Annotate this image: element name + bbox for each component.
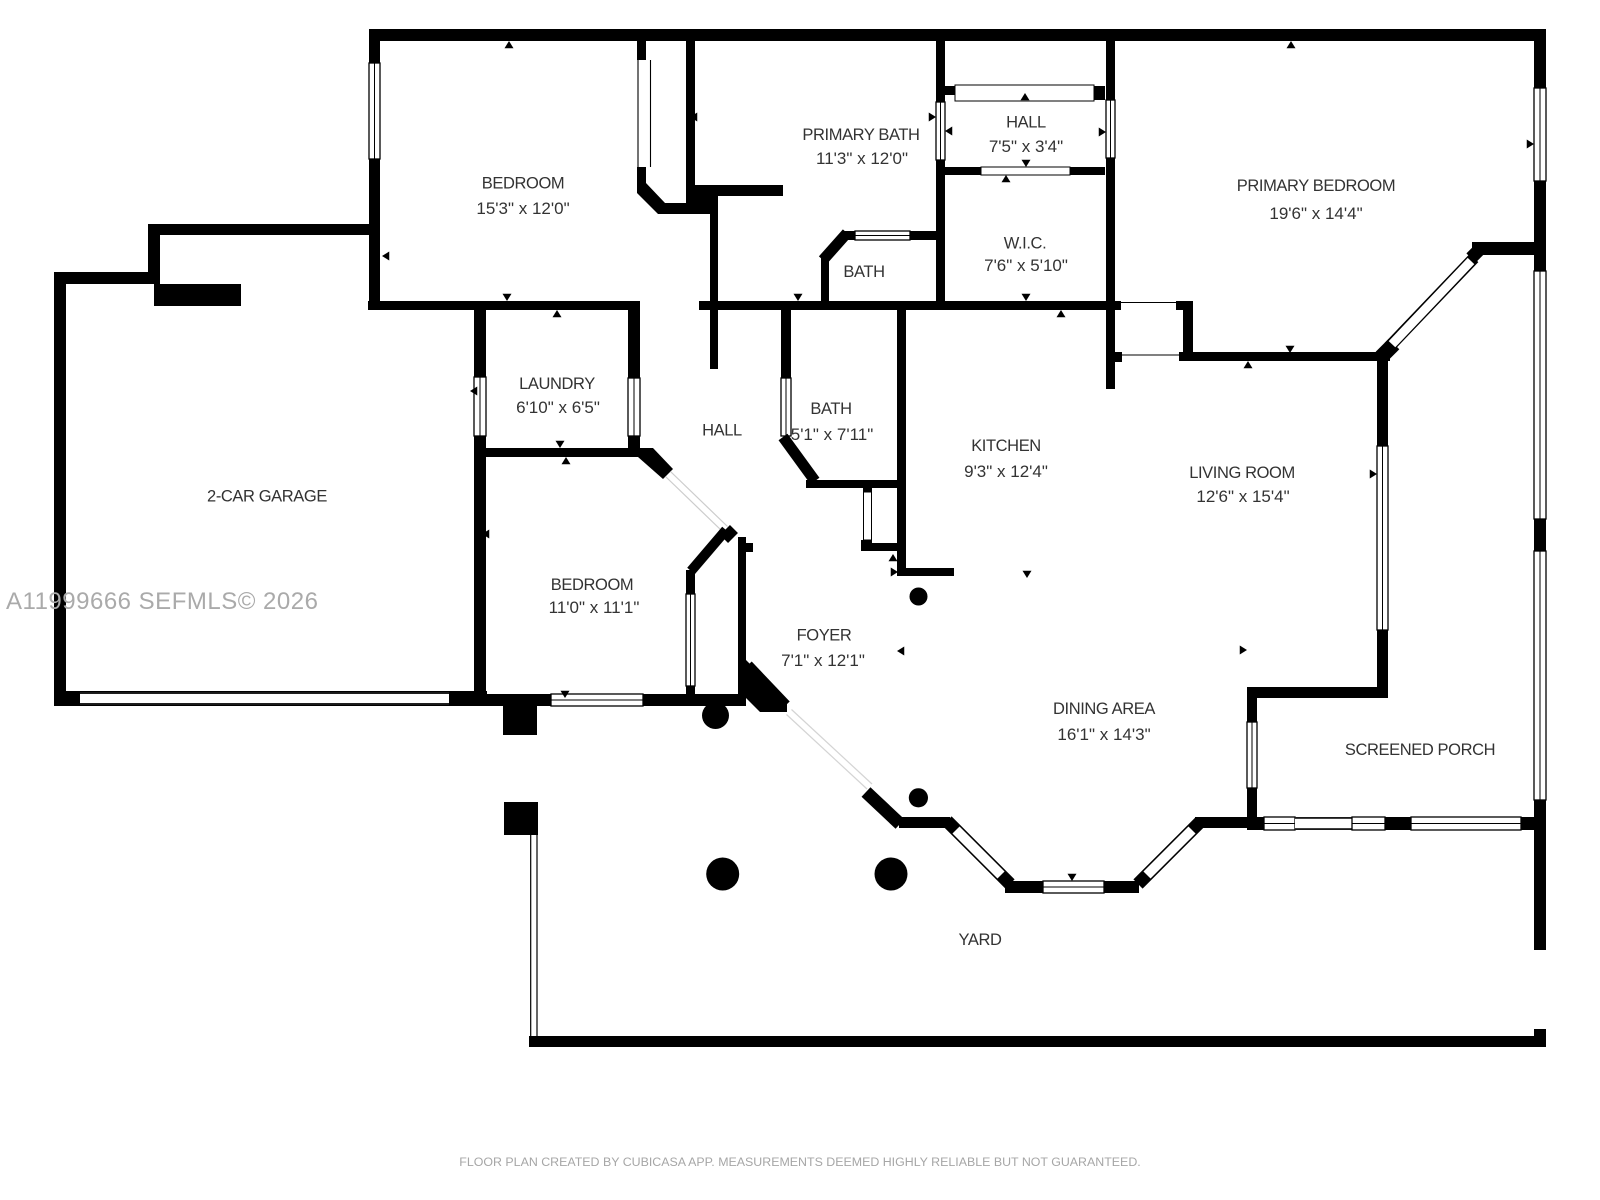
svg-text:BEDROOM: BEDROOM [482,175,564,193]
svg-text:PRIMARY BATH: PRIMARY BATH [802,126,919,144]
svg-text:LIVING ROOM: LIVING ROOM [1189,464,1295,482]
svg-text:BATH: BATH [810,400,851,418]
svg-text:11'3" x 12'0": 11'3" x 12'0" [816,149,908,168]
svg-text:BATH: BATH [843,263,884,281]
svg-text:11'0" x 11'1": 11'0" x 11'1" [549,598,640,617]
svg-text:2-CAR GARAGE: 2-CAR GARAGE [207,488,327,506]
svg-text:BEDROOM: BEDROOM [551,576,633,594]
svg-text:19'6" x 14'4": 19'6" x 14'4" [1269,204,1362,223]
svg-text:9'3" x 12'4": 9'3" x 12'4" [964,462,1048,481]
svg-text:W.I.C.: W.I.C. [1004,235,1047,253]
svg-text:YARD: YARD [958,931,1002,949]
svg-text:7'5" x 3'4": 7'5" x 3'4" [989,137,1063,156]
svg-text:7'6" x 5'10": 7'6" x 5'10" [984,256,1068,275]
svg-text:FLOOR PLAN CREATED BY CUBICASA: FLOOR PLAN CREATED BY CUBICASA APP. MEAS… [459,1155,1140,1169]
svg-text:HALL: HALL [1006,114,1046,132]
svg-text:5'1" x 7'11": 5'1" x 7'11" [791,425,874,444]
svg-text:PRIMARY BEDROOM: PRIMARY BEDROOM [1237,177,1395,195]
svg-text:KITCHEN: KITCHEN [971,437,1041,455]
svg-text:DINING AREA: DINING AREA [1053,700,1155,718]
svg-text:HALL: HALL [702,422,742,440]
svg-text:FOYER: FOYER [797,627,852,645]
svg-text:16'1" x 14'3": 16'1" x 14'3" [1057,725,1150,744]
svg-text:7'1" x 12'1": 7'1" x 12'1" [781,651,865,670]
svg-text:A11999666 SEFMLS© 2026: A11999666 SEFMLS© 2026 [6,588,318,615]
svg-text:LAUNDRY: LAUNDRY [519,375,595,393]
svg-text:SCREENED PORCH: SCREENED PORCH [1345,741,1495,759]
svg-text:6'10" x 6'5": 6'10" x 6'5" [516,398,600,417]
svg-text:15'3" x 12'0": 15'3" x 12'0" [476,199,569,218]
svg-text:12'6" x 15'4": 12'6" x 15'4" [1196,487,1289,506]
